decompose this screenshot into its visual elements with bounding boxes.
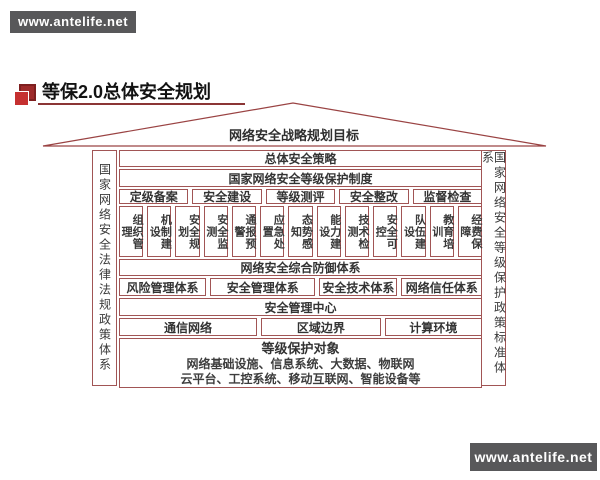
cell-grading-filing: 定级备案 [119,189,188,204]
protected-objects-line1: 网络基础设施、信息系统、大数据、物联网 [186,357,414,372]
protected-objects-title: 等级保护对象 [261,341,339,357]
capability-label: 应急处置 [261,208,283,255]
watermark-banner-bottom: www.antelife.net [470,443,597,471]
cell-report-early-warning: 通报预警 [232,206,256,257]
cell-situation-awareness: 态势感知 [288,206,312,257]
watermark-banner-top: www.antelife.net [10,11,136,33]
row-overall-security-strategy: 总体安全策略 [119,150,482,167]
capability-label: 态势感知 [290,208,312,255]
house-body: 总体安全策略 国家网络安全等级保护制度 定级备案 安全建设 等级测评 安全整改 … [119,150,482,386]
row-security-management-center: 安全管理中心 [119,298,482,316]
cell-grade-evaluation: 等级测评 [266,189,335,204]
row-process-cells: 定级备案 安全建设 等级测评 安全整改 监督检查 [119,189,482,204]
cell-security-management-system: 安全管理体系 [210,278,315,296]
right-wall-standard-policy-system: 国家网络安全等级保护政策标准体系 [481,150,506,386]
capability-label: 安全可控 [374,208,396,255]
protected-objects-line2: 云平台、工控系统、移动互联网、智能设备等 [180,372,420,387]
cell-mechanism-building: 机制建设 [147,206,171,257]
capability-label: 教育培训 [431,208,453,255]
left-wall-label: 国家网络安全法律法规政策体系 [99,163,111,373]
capability-label: 安全规划 [177,208,199,255]
cell-security-construction: 安全建设 [192,189,261,204]
cell-security-monitoring: 安全监测 [204,206,228,257]
cell-education-training: 教育培训 [430,206,454,257]
cell-communication-network: 通信网络 [119,318,257,336]
cell-supervision-inspection: 监督检查 [413,189,482,204]
cell-security-planning: 安全规划 [175,206,199,257]
cell-funding-guarantee: 经费保障 [458,206,482,257]
row-comprehensive-defense-system: 网络安全综合防御体系 [119,259,482,276]
cell-technical-testing: 技术检测 [345,206,369,257]
cell-security-controllable: 安全可控 [373,206,397,257]
red-squares-bullet-icon [14,84,36,106]
capability-label: 通报预警 [233,208,255,255]
cell-organization-management: 组织管理 [119,206,143,257]
cell-emergency-response: 应急处置 [260,206,284,257]
row-environment-cells: 通信网络 区域边界 计算环境 [119,318,482,336]
left-wall-legal-policy-system: 国家网络安全法律法规政策体系 [92,150,117,386]
capability-label: 经费保障 [459,208,481,255]
row-system-cells: 风险管理体系 安全管理体系 安全技术体系 网络信任体系 [119,278,482,296]
capability-label: 组织管理 [120,208,142,255]
cell-computing-environment: 计算环境 [385,318,482,336]
cell-security-rectification: 安全整改 [339,189,408,204]
cell-regional-boundary: 区域边界 [261,318,381,336]
cell-risk-management-system: 风险管理体系 [119,278,206,296]
capability-label: 能力建设 [318,208,340,255]
row-national-protection-system: 国家网络安全等级保护制度 [119,169,482,187]
cell-capacity-building: 能力建设 [317,206,341,257]
cell-security-technology-system: 安全技术体系 [319,278,397,296]
capability-label: 机制建设 [148,208,170,255]
capability-label: 安全监测 [205,208,227,255]
cell-network-trust-system: 网络信任体系 [401,278,482,296]
row-protected-objects: 等级保护对象 网络基础设施、信息系统、大数据、物联网 云平台、工控系统、移动互联… [119,338,482,388]
capability-label: 队伍建设 [402,208,424,255]
capability-label: 技术检测 [346,208,368,255]
cell-team-building: 队伍建设 [401,206,425,257]
roof-label: 网络安全战略规划目标 [144,125,444,144]
row-capability-columns: 组织管理 机制建设 安全规划 安全监测 通报预警 应急处置 态势感知 能力建设 … [119,206,482,257]
right-wall-label: 国家网络安全等级保护政策标准体系 [482,151,506,385]
